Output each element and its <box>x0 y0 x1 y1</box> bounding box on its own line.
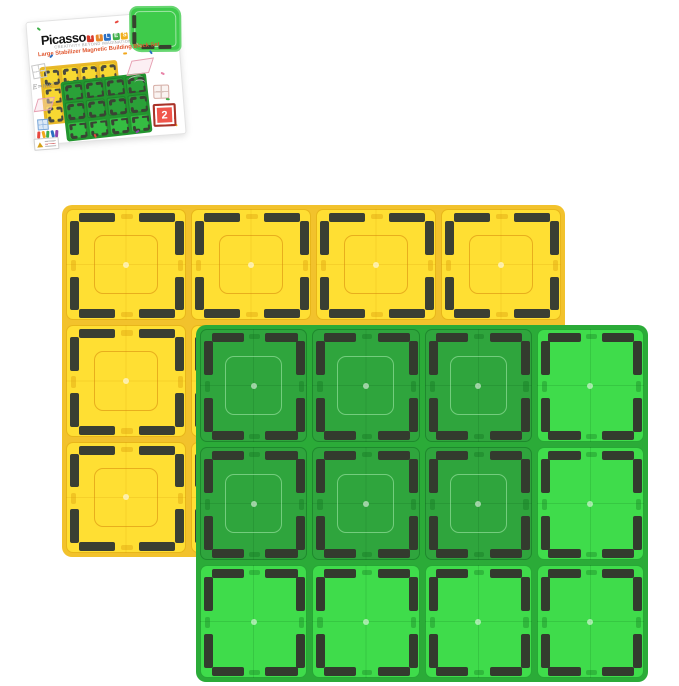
tile-edge-connector <box>474 570 485 575</box>
tile-edge-connector <box>553 260 558 271</box>
tile-edge-connector <box>249 434 260 439</box>
tile-cell <box>127 94 148 113</box>
magnet-bar <box>63 70 66 75</box>
tile-edge-connector <box>411 617 416 628</box>
tile-edge-connector <box>523 617 528 628</box>
tile-edge-connector <box>586 334 597 339</box>
magnet-bar <box>296 459 305 493</box>
magnet-bar <box>87 92 90 97</box>
magnet-bar <box>296 577 305 611</box>
tile-edge-connector <box>542 499 547 510</box>
magnet-bar <box>132 15 136 28</box>
tile-edge-connector <box>362 452 373 457</box>
magnet-bar <box>175 277 184 310</box>
magnet-bar <box>324 451 356 460</box>
magnet-bar <box>79 329 115 338</box>
magnet-bar <box>429 341 438 375</box>
magnet-bar <box>378 333 410 342</box>
tile-edge-connector <box>523 381 528 392</box>
magnet-bar <box>195 221 204 254</box>
tile-edge-connector <box>121 330 133 335</box>
magnet-bar <box>147 124 150 129</box>
magnet-bar <box>541 634 550 668</box>
tile-edge-connector <box>636 617 641 628</box>
tile-edge-connector <box>474 670 485 675</box>
magnet-bar <box>521 398 530 432</box>
magnet-bar <box>324 549 356 558</box>
magnet-bar <box>204 516 213 550</box>
magnet-bar <box>204 577 213 611</box>
tile-cell <box>537 447 644 560</box>
magnet-bar <box>130 98 133 103</box>
grid-icon <box>37 119 49 131</box>
magnet-bar <box>204 213 240 222</box>
magnet-bar <box>139 329 175 338</box>
tile-edge-connector <box>317 381 322 392</box>
magnet-bar <box>490 431 522 440</box>
tile-edge-connector <box>246 214 258 219</box>
tile-cell <box>104 77 125 96</box>
magnet-bar <box>320 221 329 254</box>
tile-center-rivet <box>363 383 369 389</box>
tile-cell <box>200 565 307 678</box>
tile-edge-connector <box>299 381 304 392</box>
magnet-bar <box>175 221 184 254</box>
magnet-bar <box>264 309 300 318</box>
magnet-bar <box>445 221 454 254</box>
magnet-bar <box>204 341 213 375</box>
magnet-bar <box>111 120 114 125</box>
magnet-bar <box>633 341 642 375</box>
magnet-bar <box>541 341 550 375</box>
tile-edge-connector <box>586 452 597 457</box>
magnet-bar <box>107 81 110 86</box>
magnet-bar <box>265 431 297 440</box>
magnet-bar <box>521 516 530 550</box>
tile-edge-connector <box>321 260 326 271</box>
magnet-bar <box>490 451 522 460</box>
tile-edge-connector <box>496 214 508 219</box>
magnet-bar <box>429 516 438 550</box>
tile-edge-connector <box>249 334 260 339</box>
magnet-bar <box>548 549 580 558</box>
tile-cell <box>537 565 644 678</box>
magnet-bar <box>212 451 244 460</box>
magnet-bar <box>514 213 550 222</box>
magnet-bar <box>61 116 64 121</box>
magnet-bar <box>633 398 642 432</box>
magnet-bar <box>126 127 129 132</box>
magnet-bar <box>57 78 60 83</box>
magnet-bar <box>378 549 410 558</box>
magnet-bar <box>265 569 297 578</box>
magnet-bar <box>602 333 634 342</box>
magnet-bar <box>436 667 468 676</box>
product-box: Picasso TILES CREATIVITY BEYOND IMAGINAT… <box>25 10 186 146</box>
magnet-bar <box>128 88 131 93</box>
tile-edge-connector <box>299 617 304 628</box>
magnet-bar <box>65 86 68 91</box>
tile-center-rivet <box>475 501 481 507</box>
magnet-bar <box>296 341 305 375</box>
magnet-bar <box>633 577 642 611</box>
tile-edge-connector <box>586 434 597 439</box>
magnet-bar <box>409 516 418 550</box>
scribble-doodle <box>134 79 145 86</box>
magnet-bar <box>316 459 325 493</box>
product-photo: Picasso TILES CREATIVITY BEYOND IMAGINAT… <box>0 0 679 686</box>
magnet-bar <box>53 70 58 73</box>
tile-edge-connector <box>371 214 383 219</box>
tile-center-rivet <box>123 262 129 268</box>
tile-cell <box>65 101 86 120</box>
tile-edge-connector <box>496 312 508 317</box>
magnet-bar <box>436 569 468 578</box>
magnet-bar <box>265 549 297 558</box>
magnet-bar <box>105 129 108 134</box>
magnet-bar <box>541 577 550 611</box>
tile-center-rivet <box>498 262 504 268</box>
dimension-stamp-icon <box>153 85 169 99</box>
magnet-bar <box>541 516 550 550</box>
magnet-bar <box>89 112 92 117</box>
warning-triangle-icon <box>37 142 43 147</box>
tile-edge-connector <box>71 260 76 271</box>
magnet-bar <box>602 431 634 440</box>
magnet-bar <box>108 90 111 95</box>
tile-edge-connector <box>362 434 373 439</box>
tile-center-rivet <box>123 494 129 500</box>
magnet-bar <box>521 577 530 611</box>
magnet-bar <box>602 667 634 676</box>
magnet-bar <box>389 213 425 222</box>
tile-cell <box>83 79 104 98</box>
magnet-bar <box>602 549 634 558</box>
tile-edge-connector <box>299 499 304 510</box>
tile-edge-connector <box>205 381 210 392</box>
tile-edge-connector <box>636 381 641 392</box>
magnet-bar <box>90 122 93 127</box>
magnet-bar <box>320 277 329 310</box>
magnet-bar <box>633 516 642 550</box>
magnet-bar <box>175 454 184 487</box>
magnet-bar <box>103 110 106 115</box>
tile-edge-connector <box>249 452 260 457</box>
magnet-bar <box>521 341 530 375</box>
magnet-bar <box>70 133 73 138</box>
tile-cell <box>441 209 561 320</box>
tile-cell <box>425 565 532 678</box>
magnet-bar <box>145 105 148 110</box>
magnet-bar <box>131 107 134 112</box>
magnet-bar <box>139 309 175 318</box>
magnet-bar <box>454 309 490 318</box>
tile-center-rivet <box>475 383 481 389</box>
magnet-bar <box>70 337 79 370</box>
tile-cell <box>66 209 186 320</box>
magnet-bar <box>139 446 175 455</box>
tile-edge-connector <box>178 493 183 504</box>
magnet-bar <box>378 569 410 578</box>
magnet-bar <box>409 459 418 493</box>
magnet-bar <box>82 112 85 117</box>
magnet-bar <box>541 398 550 432</box>
tile-cell <box>316 209 436 320</box>
tile-center-rivet <box>373 262 379 268</box>
tile-edge-connector <box>411 499 416 510</box>
tile-edge-connector <box>411 381 416 392</box>
tile-edge-connector <box>249 552 260 557</box>
magnet-bar <box>101 91 104 96</box>
tile-edge-connector <box>121 312 133 317</box>
tile-edge-connector <box>430 499 435 510</box>
magnet-bar <box>429 398 438 432</box>
magnet-bar <box>409 577 418 611</box>
tile-cell <box>130 113 151 132</box>
tile-cell <box>109 115 130 134</box>
tile-cell <box>425 447 532 560</box>
magnet-bar <box>79 213 115 222</box>
tile-center-rivet <box>587 619 593 625</box>
tile-cell <box>200 447 307 560</box>
tile-cell <box>425 329 532 442</box>
magnet-bar <box>316 516 325 550</box>
magnet-bar <box>72 68 77 71</box>
magnet-bar <box>79 446 115 455</box>
magnet-bar <box>429 577 438 611</box>
tile-edge-connector <box>474 334 485 339</box>
tile-edge-connector <box>586 552 597 557</box>
magnet-bar <box>110 109 113 114</box>
magnet-bar <box>548 333 580 342</box>
tile-edge-connector <box>178 260 183 271</box>
tile-edge-connector <box>542 381 547 392</box>
warning-label <box>34 137 60 151</box>
magnet-bar <box>212 569 244 578</box>
magnet-bar <box>124 108 127 113</box>
tile-cell <box>191 209 311 320</box>
magnet-bar <box>79 542 115 551</box>
tile-cell <box>312 447 419 560</box>
magnet-bar <box>139 542 175 551</box>
magnet-bar <box>490 333 522 342</box>
tile-edge-connector <box>362 334 373 339</box>
tile-cell <box>200 329 307 442</box>
magnet-bar <box>409 634 418 668</box>
magnet-bar <box>70 221 79 254</box>
magnet-bar <box>70 277 79 310</box>
tile-edge-connector <box>636 499 641 510</box>
tile-edge-connector <box>430 381 435 392</box>
magnet-bar <box>550 221 559 254</box>
tile-center-rivet <box>363 501 369 507</box>
magnet-bar <box>324 333 356 342</box>
magnet-bar <box>175 337 184 370</box>
magnet-bar <box>296 398 305 432</box>
magnet-bar <box>490 549 522 558</box>
tile-edge-connector <box>362 552 373 557</box>
magnet-bar <box>550 277 559 310</box>
magnet-bar <box>265 451 297 460</box>
tile-edge-connector <box>371 312 383 317</box>
magnet-bar <box>436 431 468 440</box>
magnet-bar <box>548 569 580 578</box>
tile-center-rivet <box>251 501 257 507</box>
magnet-bar <box>296 516 305 550</box>
tile-edge-connector <box>317 499 322 510</box>
magnet-bar <box>548 431 580 440</box>
magnet-bar <box>175 393 184 426</box>
magnet-bar <box>110 64 115 67</box>
magnet-bar <box>100 66 103 71</box>
tile-cell <box>66 325 186 436</box>
tile-edge-connector <box>430 617 435 628</box>
tile-cell <box>63 82 84 101</box>
tile-edge-connector <box>246 312 258 317</box>
tile-edge-connector <box>474 452 485 457</box>
tile-center-rivet <box>587 383 593 389</box>
magnet-bar <box>143 86 146 91</box>
tile-edge-connector <box>446 260 451 271</box>
magnet-bar <box>324 569 356 578</box>
magnet-bar <box>264 213 300 222</box>
magnet-bar <box>454 213 490 222</box>
tile-cell <box>106 96 127 115</box>
confetti-mark <box>123 52 127 54</box>
magnet-bar <box>378 667 410 676</box>
magnet-bar <box>436 333 468 342</box>
green-baseplate <box>196 325 648 682</box>
piece-count-badge: 2 <box>153 103 177 127</box>
tile-edge-connector <box>205 617 210 628</box>
tile-edge-connector <box>196 260 201 271</box>
tile-edge-connector <box>523 499 528 510</box>
tile-center-rivet <box>587 501 593 507</box>
magnet-bar <box>195 277 204 310</box>
magnet-bar <box>175 509 184 542</box>
magnet-bar <box>378 451 410 460</box>
magnet-bar <box>514 309 550 318</box>
tile-edge-connector <box>121 545 133 550</box>
tile-cell <box>537 329 644 442</box>
magnet-bar <box>132 117 135 122</box>
warning-text-lines <box>44 140 56 147</box>
tile-edge-connector <box>428 260 433 271</box>
magnet-bar <box>329 213 365 222</box>
magnet-bar <box>429 634 438 668</box>
tile-cell <box>66 442 186 553</box>
tile-edge-connector <box>249 570 260 575</box>
magnet-bar <box>521 459 530 493</box>
tile-edge-connector <box>586 670 597 675</box>
magnet-bar <box>409 341 418 375</box>
magnet-bar <box>300 277 309 310</box>
magnet-bar <box>548 667 580 676</box>
magnet-bar <box>204 309 240 318</box>
magnet-bar <box>324 667 356 676</box>
magnet-bar <box>389 309 425 318</box>
tile-edge-connector <box>249 670 260 675</box>
tile-center-rivet <box>251 383 257 389</box>
tile-cell <box>312 565 419 678</box>
magnet-bar <box>82 68 85 73</box>
magnet-bar <box>265 667 297 676</box>
magnet-bar <box>490 667 522 676</box>
tile-edge-connector <box>542 617 547 628</box>
magnet-bar <box>490 569 522 578</box>
tile-edge-connector <box>121 214 133 219</box>
magnet-bar <box>329 309 365 318</box>
magnet-bar <box>70 509 79 542</box>
magnet-bar <box>300 221 309 254</box>
magnet-bar <box>602 451 634 460</box>
tile-edge-connector <box>71 376 76 387</box>
magnet-bar <box>67 105 70 110</box>
magnet-bar <box>79 309 115 318</box>
magnet-bar <box>541 459 550 493</box>
tile-edge-connector <box>205 499 210 510</box>
magnet-bar <box>139 213 175 222</box>
tile-cell <box>67 120 88 139</box>
tile-edge-connector <box>474 434 485 439</box>
tile-edge-connector <box>474 552 485 557</box>
magnet-bar <box>429 459 438 493</box>
magnet-bar <box>436 451 468 460</box>
magnet-bar <box>521 634 530 668</box>
tile-center-rivet <box>251 619 257 625</box>
magnet-bar <box>69 125 72 130</box>
magnet-bar <box>112 128 115 133</box>
magnet-bar <box>316 398 325 432</box>
tile-center-rivet <box>475 619 481 625</box>
magnet-bar <box>316 577 325 611</box>
magnet-bar <box>548 451 580 460</box>
magnet-bar <box>86 84 89 89</box>
magnet-bar <box>122 88 125 93</box>
tile-edge-connector <box>121 428 133 433</box>
tile-cell <box>86 99 107 118</box>
magnet-bar <box>66 95 69 100</box>
tile-edge-connector <box>362 570 373 575</box>
magnet-bar <box>139 426 175 435</box>
magnet-bar <box>425 221 434 254</box>
magnet-bar <box>48 117 51 122</box>
magnet-bar <box>204 459 213 493</box>
magnet-bar <box>204 634 213 668</box>
tile-cell <box>88 118 109 137</box>
magnet-bar <box>109 101 112 106</box>
magnet-bar <box>204 398 213 432</box>
magnet-bar <box>633 634 642 668</box>
tile-center-rivet <box>123 378 129 384</box>
magnet-bar <box>68 114 71 119</box>
magnet-bar <box>88 103 91 108</box>
tile-edge-connector <box>317 617 322 628</box>
tile-edge-connector <box>586 570 597 575</box>
tile-edge-connector <box>303 260 308 271</box>
magnet-bar <box>70 393 79 426</box>
magnet-bar <box>91 66 96 69</box>
magnet-bar <box>316 341 325 375</box>
tile-center-rivet <box>363 619 369 625</box>
confetti-mark <box>114 20 118 23</box>
tile-edge-connector <box>71 493 76 504</box>
magnet-bar <box>436 549 468 558</box>
magnet-bar <box>633 459 642 493</box>
tile-edge-connector <box>362 670 373 675</box>
magnet-bar <box>46 90 49 95</box>
magnet-bar <box>212 431 244 440</box>
